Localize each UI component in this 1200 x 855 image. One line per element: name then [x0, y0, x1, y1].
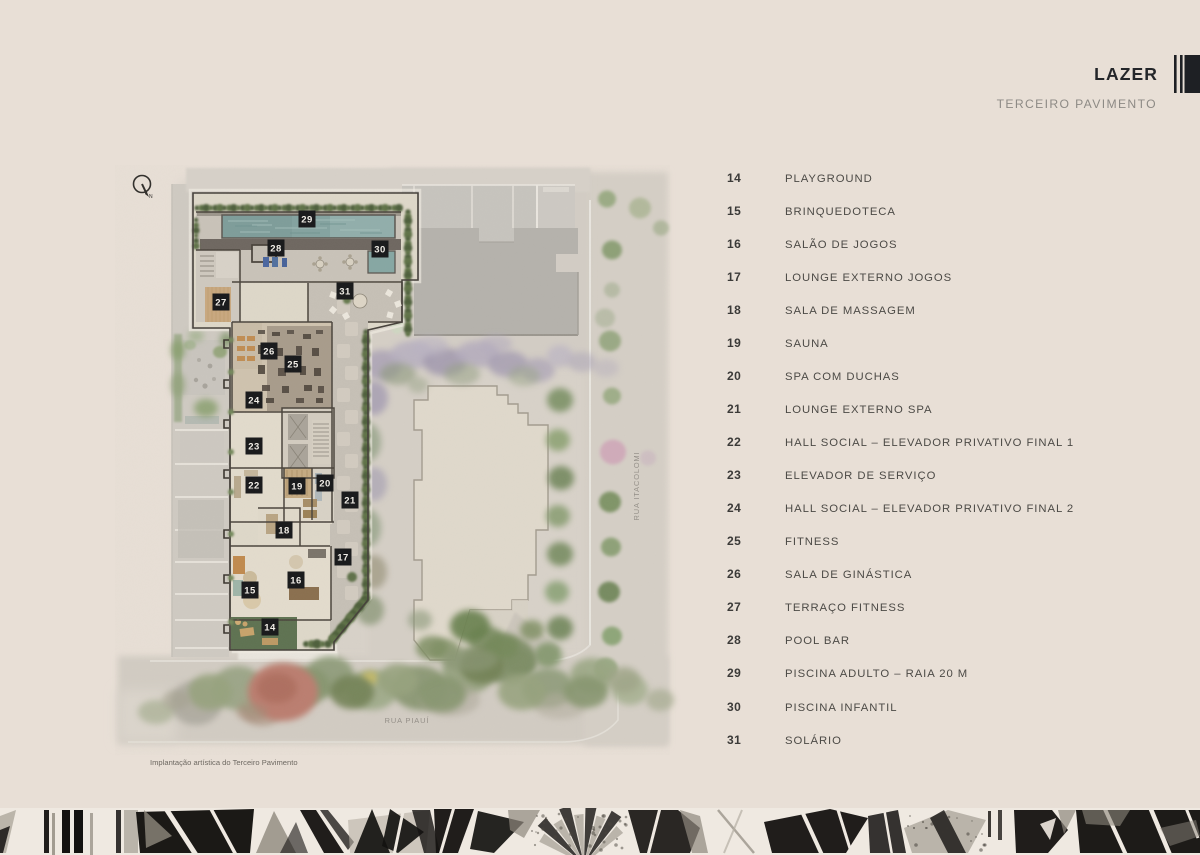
svg-text:RUA ITACOLOMI: RUA ITACOLOMI [632, 451, 641, 520]
svg-text:RUA PIAUÍ: RUA PIAUÍ [385, 716, 430, 725]
svg-text:Implantação artística do Terce: Implantação artística do Terceiro Pavime… [150, 758, 298, 767]
svg-text:N: N [149, 194, 153, 200]
